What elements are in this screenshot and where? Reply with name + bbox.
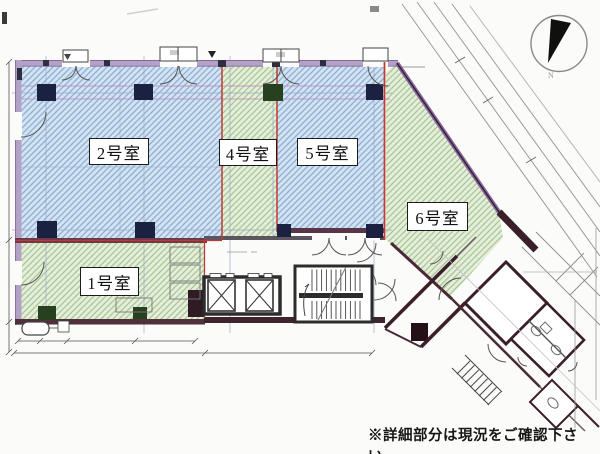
compass-icon: N bbox=[531, 16, 587, 81]
elevator-1 bbox=[208, 280, 235, 311]
scan-artifacts bbox=[2, 6, 379, 24]
compass-label: N bbox=[548, 71, 554, 80]
elevator-2 bbox=[246, 280, 273, 311]
vent-marker bbox=[208, 51, 216, 58]
room-label-2: 2号室 bbox=[89, 138, 149, 165]
room-label-1: 1号室 bbox=[80, 267, 139, 296]
floor-plan: N bbox=[0, 0, 600, 454]
top-wall-fixtures bbox=[63, 47, 388, 62]
room-label-6: 6号室 bbox=[407, 202, 468, 231]
room-label-4: 4号室 bbox=[219, 139, 277, 166]
elevator-core bbox=[204, 252, 280, 314]
wing-small-room bbox=[530, 380, 578, 428]
staircase bbox=[295, 266, 372, 322]
room-label-5: 5号室 bbox=[297, 138, 358, 166]
disclaimer-note: ※詳細部分は現況をご確認下さい。 bbox=[368, 424, 596, 454]
wing-stairs bbox=[452, 355, 502, 405]
north-needle bbox=[548, 19, 571, 63]
floor-plan-drawing: N bbox=[0, 0, 600, 454]
room-6-area bbox=[386, 63, 503, 297]
